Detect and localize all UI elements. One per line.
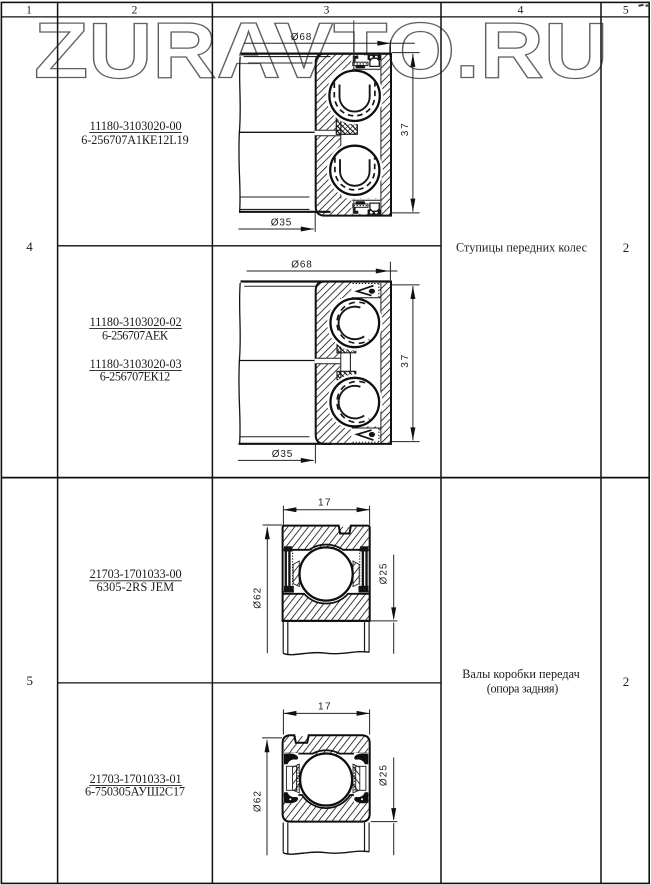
svg-text:1: 1 <box>26 5 32 17</box>
svg-text:2: 2 <box>623 240 630 255</box>
svg-text:5: 5 <box>27 673 34 688</box>
svg-text:4: 4 <box>26 239 33 254</box>
svg-text:(опора задняя): (опора задняя) <box>487 681 559 695</box>
svg-text:Ø35: Ø35 <box>271 217 292 228</box>
svg-text:Ø62: Ø62 <box>252 791 263 812</box>
svg-text:37: 37 <box>400 123 411 136</box>
svg-text:Ø35: Ø35 <box>272 449 293 460</box>
svg-text:6-750305АУШ2С17: 6-750305АУШ2С17 <box>85 785 185 799</box>
svg-text:Ø68: Ø68 <box>291 32 312 43</box>
svg-text:17: 17 <box>318 701 331 712</box>
svg-text:Ø62: Ø62 <box>253 587 264 608</box>
svg-text:11180-3103020-00: 11180-3103020-00 <box>90 119 182 133</box>
svg-text:Валы коробки передач: Валы коробки передач <box>462 667 580 681</box>
svg-text:Ø25: Ø25 <box>378 765 389 786</box>
svg-text:Ø68: Ø68 <box>291 259 312 270</box>
svg-text:5: 5 <box>623 5 629 17</box>
svg-text:4: 4 <box>518 5 524 17</box>
svg-text:2: 2 <box>132 5 138 17</box>
svg-text:17: 17 <box>318 498 331 509</box>
svg-text:Ø25: Ø25 <box>378 563 389 584</box>
svg-text:6-256707ЕК12: 6-256707ЕК12 <box>100 370 171 384</box>
svg-text:3: 3 <box>324 5 330 17</box>
svg-text:2: 2 <box>623 674 630 689</box>
svg-text:Ступицы передних колес: Ступицы передних колес <box>456 240 588 254</box>
svg-text:6-256707А1КЕ12L19: 6-256707А1КЕ12L19 <box>81 133 189 147</box>
svg-text:11180-3103020-02: 11180-3103020-02 <box>90 315 182 329</box>
svg-text:6305-2RS JEM: 6305-2RS JEM <box>97 580 175 594</box>
svg-text:37: 37 <box>400 354 411 367</box>
svg-text:6-256707АЕК: 6-256707АЕК <box>102 329 169 343</box>
